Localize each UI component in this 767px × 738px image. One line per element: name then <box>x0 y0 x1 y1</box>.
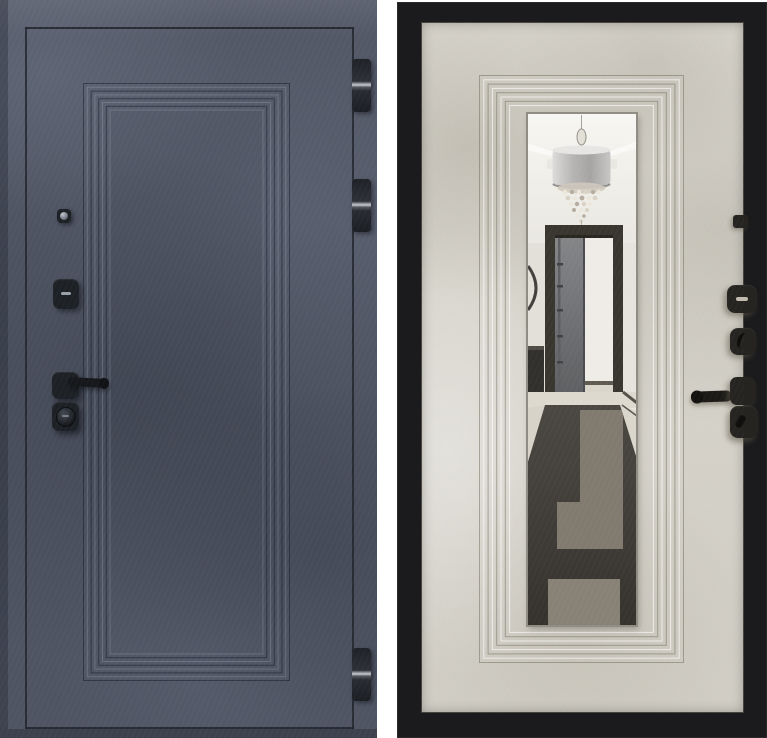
door-leaf-left-gap <box>25 27 27 729</box>
keyhole-cover <box>53 279 79 309</box>
hinge-top <box>352 59 371 112</box>
lever-handle <box>692 390 732 402</box>
hinge-bottom <box>352 648 371 701</box>
product-image-door-both-sides <box>0 0 767 738</box>
mirror <box>527 113 637 626</box>
right-door-photo <box>397 2 767 738</box>
left-door-frame-edge <box>0 0 8 738</box>
cylinder-keyslot <box>62 415 69 418</box>
lock-cylinder <box>730 406 758 438</box>
lock-plate <box>727 285 757 313</box>
threshold <box>0 729 377 738</box>
peephole-icon <box>733 215 748 228</box>
keyhole <box>734 414 746 429</box>
lever-tip <box>691 390 703 403</box>
peephole-lens <box>60 212 68 220</box>
peephole-icon <box>57 209 71 223</box>
door-leaf-right-gap <box>352 27 354 729</box>
keyhole-slot <box>61 292 71 295</box>
interior-door-panel <box>421 22 744 713</box>
lock-cylinder <box>52 402 79 431</box>
lock-plate-slot <box>736 297 748 301</box>
mirror-reflection-scene <box>527 113 637 626</box>
handle-escutcheon <box>730 377 756 405</box>
door-leaf-top-gap <box>25 27 354 29</box>
hinge-middle <box>352 179 371 232</box>
inner-flat-panel <box>110 110 263 654</box>
thumb-turn-mark <box>735 332 751 351</box>
left-door-photo <box>0 0 377 738</box>
glass-sheen <box>527 113 637 626</box>
thumb-turn <box>730 328 756 355</box>
